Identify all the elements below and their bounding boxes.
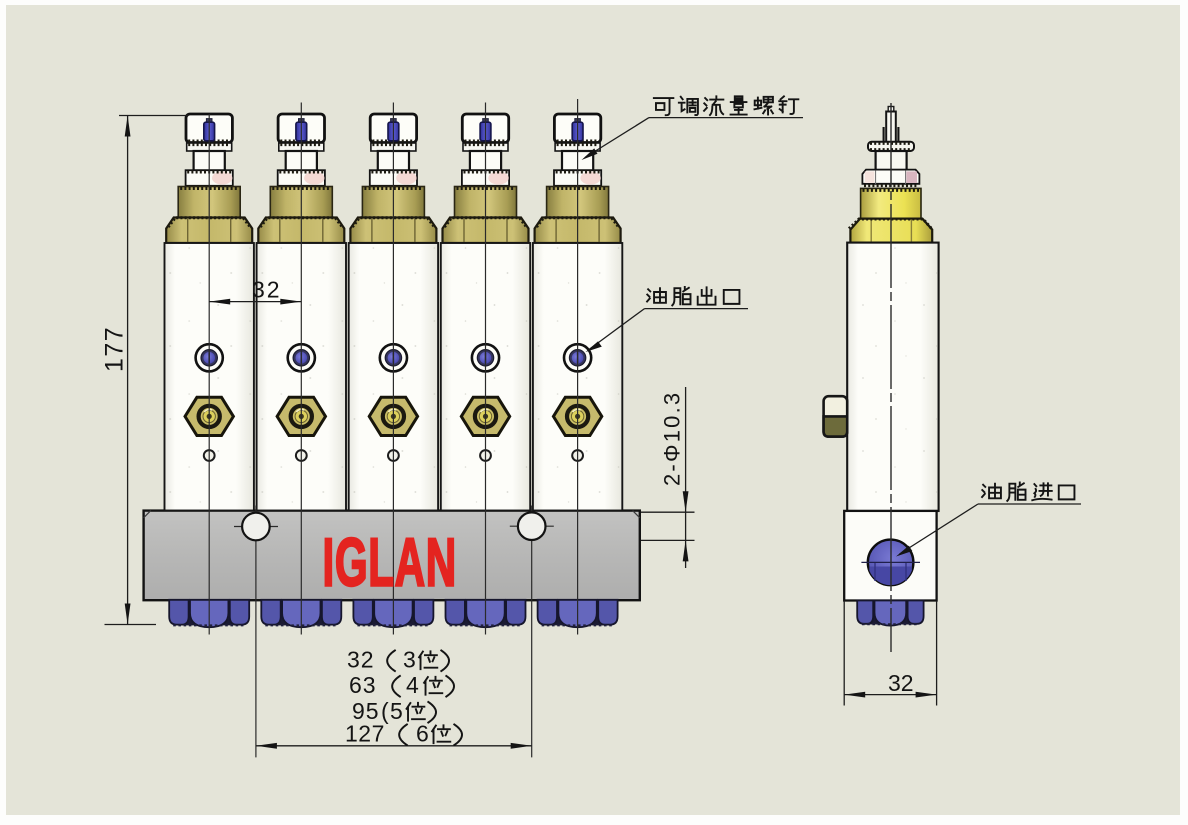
svg-text:127: 127 [345, 721, 385, 747]
svg-text:2-Φ10.3: 2-Φ10.3 [660, 391, 685, 486]
svg-text:63: 63 [349, 672, 377, 698]
svg-text:32: 32 [888, 670, 914, 696]
svg-text:3: 3 [403, 647, 416, 673]
svg-text:5: 5 [390, 698, 403, 724]
svg-text:6: 6 [416, 721, 429, 747]
svg-text:32: 32 [252, 277, 282, 303]
svg-text:IGLAN: IGLAN [323, 524, 457, 600]
svg-text:32: 32 [347, 647, 375, 673]
svg-text:4: 4 [406, 672, 419, 698]
svg-text:177: 177 [101, 326, 129, 372]
